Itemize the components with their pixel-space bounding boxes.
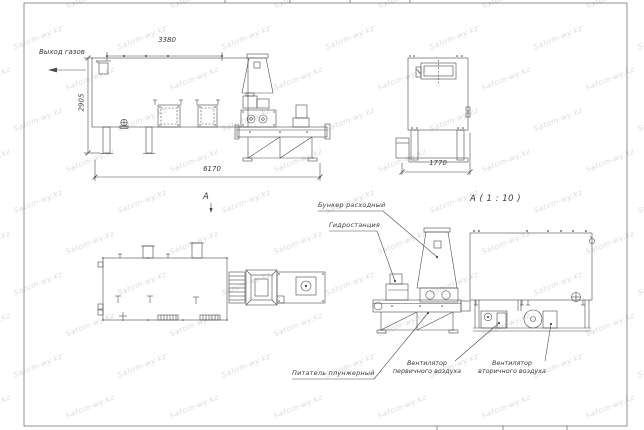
dimension-height: 2905 [79,87,86,119]
dimension-top-width: 3380 [150,37,184,44]
section-label: A [203,193,209,202]
primary-fan-label: Вентилятор первичного воздуха [387,359,467,375]
secondary-fan-label: Вентилятор вторичного воздуха [471,359,553,375]
view-detail [373,228,595,333]
primary-fan-label-line2: первичного воздуха [393,367,461,375]
view-plan [98,243,325,321]
dimension-total-length: 6170 [194,166,230,173]
gas-outlet-label: Выход газов [39,49,85,56]
hydraulic-station-label: Гидростанция [329,222,380,229]
detail-view-title: A ( 1 : 10 ) [470,195,521,204]
hopper-label: Бункер расходный [318,202,385,209]
leader-lines [209,203,552,379]
view-side [48,52,330,181]
drawing-sheet: Satom-wy.kzSatom-wy.kzSatom-wy.kzSatom-w… [0,0,644,430]
secondary-fan-label-line2: вторичного воздуха [478,367,546,375]
secondary-fan-label-line1: Вентилятор [492,359,532,367]
dimension-end-width: 1770 [419,160,457,167]
plunger-feeder-label: Питатель плунжерный [292,370,375,377]
primary-fan-label-line1: Вентилятор [407,359,447,367]
view-end [396,55,473,175]
